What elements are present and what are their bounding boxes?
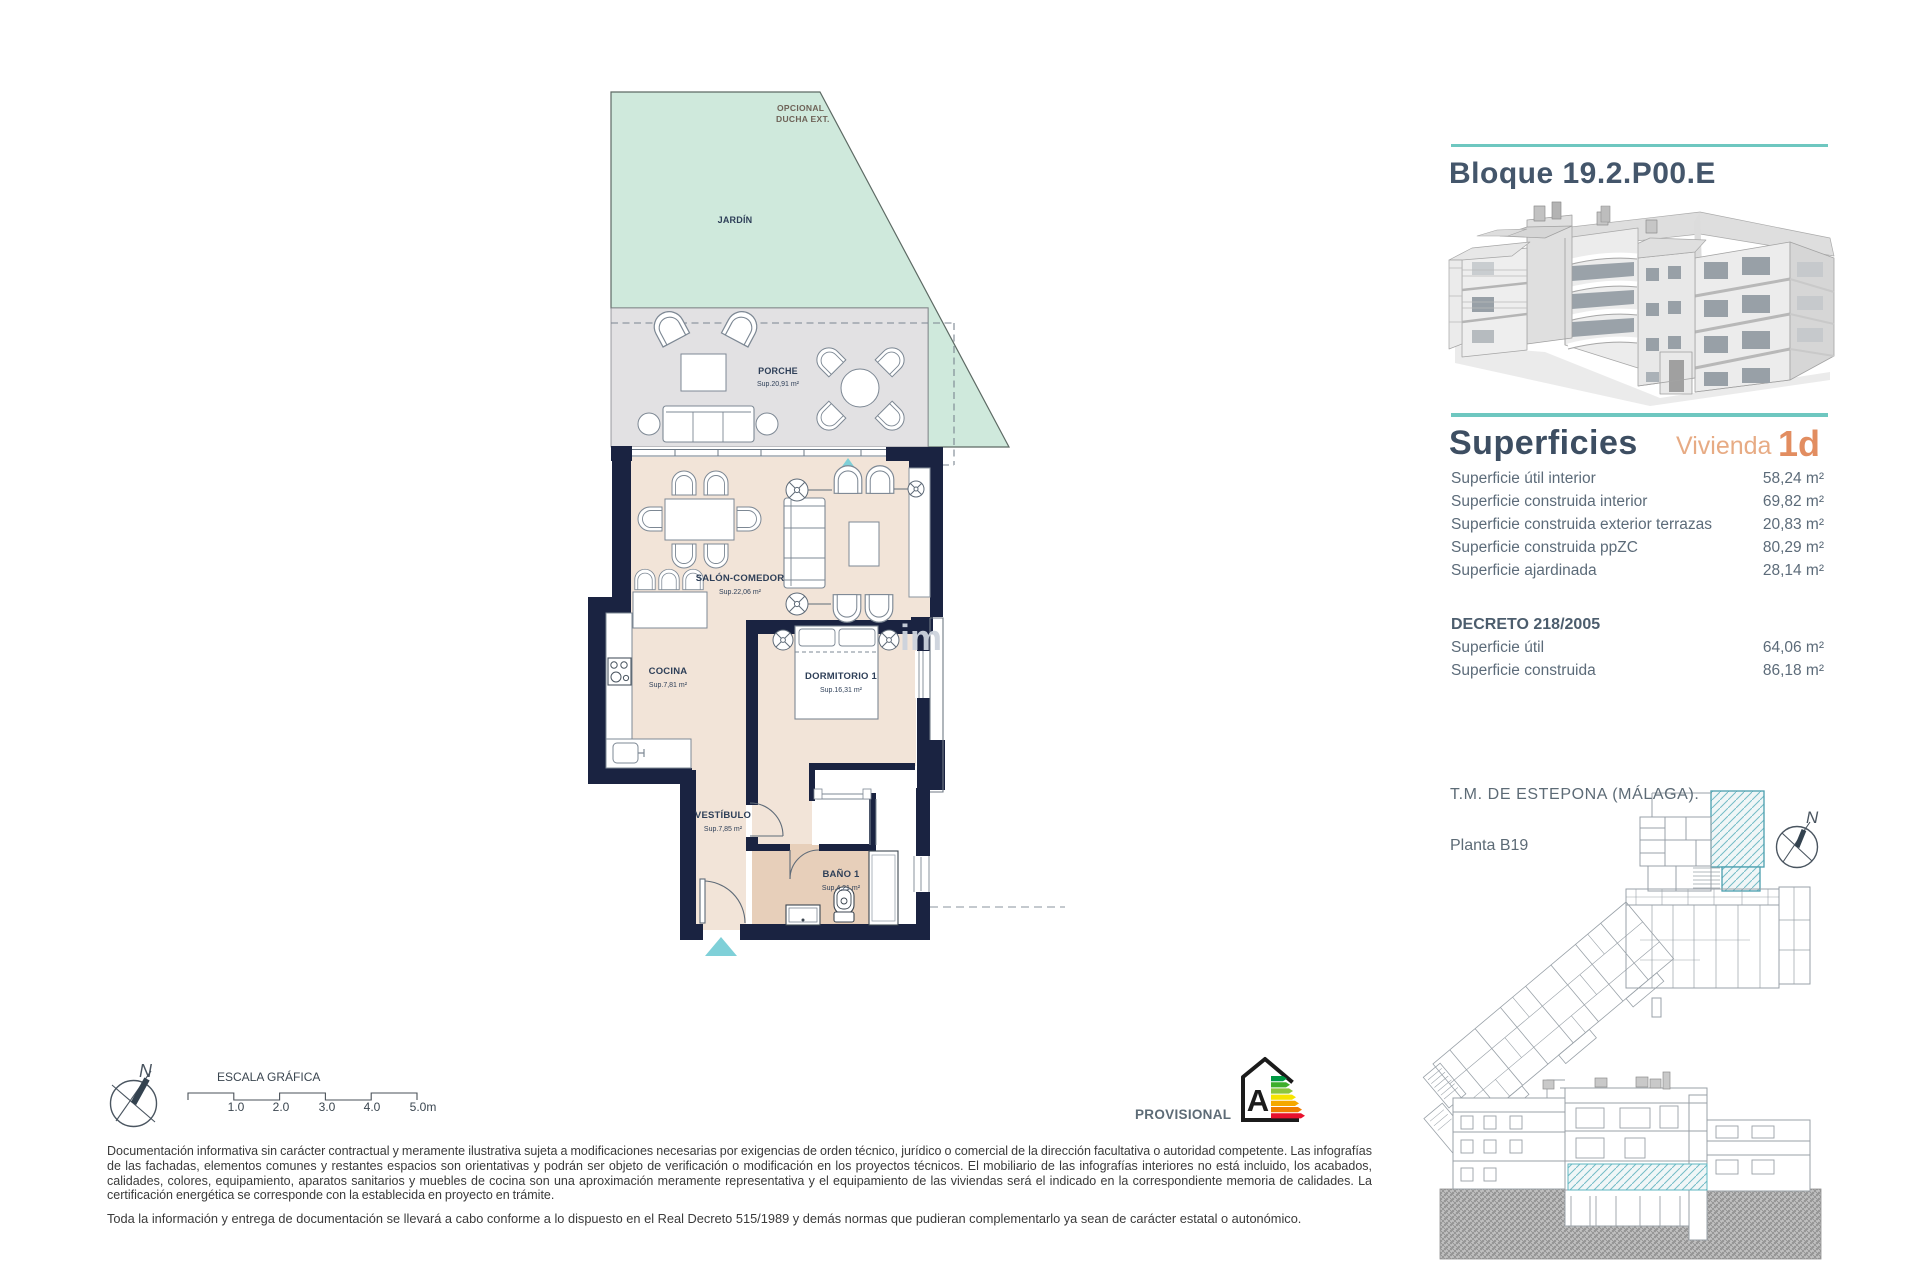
svg-text:JARDÍN: JARDÍN bbox=[718, 215, 753, 225]
svg-text:Sup.20,91 m²: Sup.20,91 m² bbox=[757, 381, 800, 388]
svg-text:SALÓN-COMEDOR: SALÓN-COMEDOR bbox=[696, 572, 785, 584]
svg-text:PORCHE: PORCHE bbox=[758, 366, 798, 376]
svg-text:Sup.4,21 m²: Sup.4,21 m² bbox=[822, 885, 861, 892]
svg-text:4.0: 4.0 bbox=[364, 1100, 381, 1114]
svg-text:OPCIONAL: OPCIONAL bbox=[777, 103, 824, 113]
svg-text:BAÑO 1: BAÑO 1 bbox=[822, 869, 860, 880]
svg-text:DORMITORIO 1: DORMITORIO 1 bbox=[805, 671, 877, 682]
svg-text:5.0m: 5.0m bbox=[410, 1100, 437, 1114]
svg-text:N: N bbox=[1806, 808, 1819, 827]
svg-text:Sup.22,06 m²: Sup.22,06 m² bbox=[719, 589, 762, 596]
svg-text:Sup.7,81 m²: Sup.7,81 m² bbox=[649, 682, 688, 689]
svg-text:Sup.16,31 m²: Sup.16,31 m² bbox=[820, 687, 863, 694]
svg-text:VESTÍBULO: VESTÍBULO bbox=[695, 810, 751, 821]
svg-text:2.0: 2.0 bbox=[273, 1100, 290, 1114]
svg-text:N: N bbox=[139, 1061, 153, 1081]
svg-text:1.0: 1.0 bbox=[228, 1100, 245, 1114]
svg-text:im: im bbox=[900, 617, 942, 658]
svg-text:Sup.7,85 m²: Sup.7,85 m² bbox=[704, 826, 743, 833]
svg-text:COCINA: COCINA bbox=[649, 666, 688, 677]
svg-text:A: A bbox=[1247, 1083, 1269, 1118]
svg-text:ESCALA GRÁFICA: ESCALA GRÁFICA bbox=[217, 1069, 320, 1084]
svg-text:3.0: 3.0 bbox=[319, 1100, 336, 1114]
svg-text:DUCHA EXT.: DUCHA EXT. bbox=[776, 114, 830, 124]
